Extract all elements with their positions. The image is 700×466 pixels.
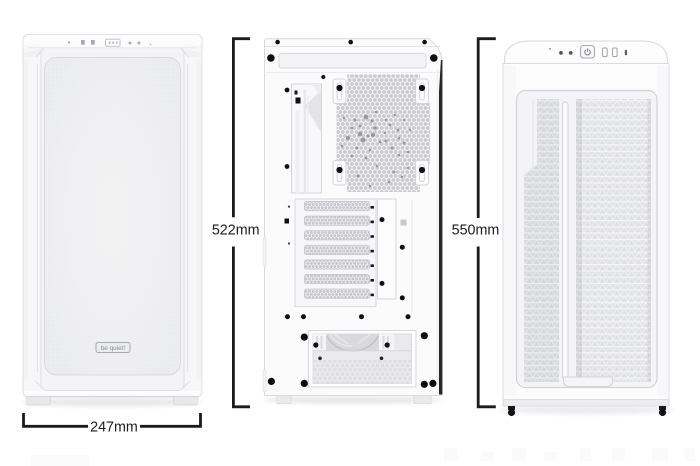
svg-text:be quiet!: be quiet! xyxy=(101,345,126,352)
svg-text:550mm: 550mm xyxy=(452,223,500,239)
svg-text:247mm: 247mm xyxy=(90,420,138,436)
svg-text:522mm: 522mm xyxy=(212,223,260,239)
